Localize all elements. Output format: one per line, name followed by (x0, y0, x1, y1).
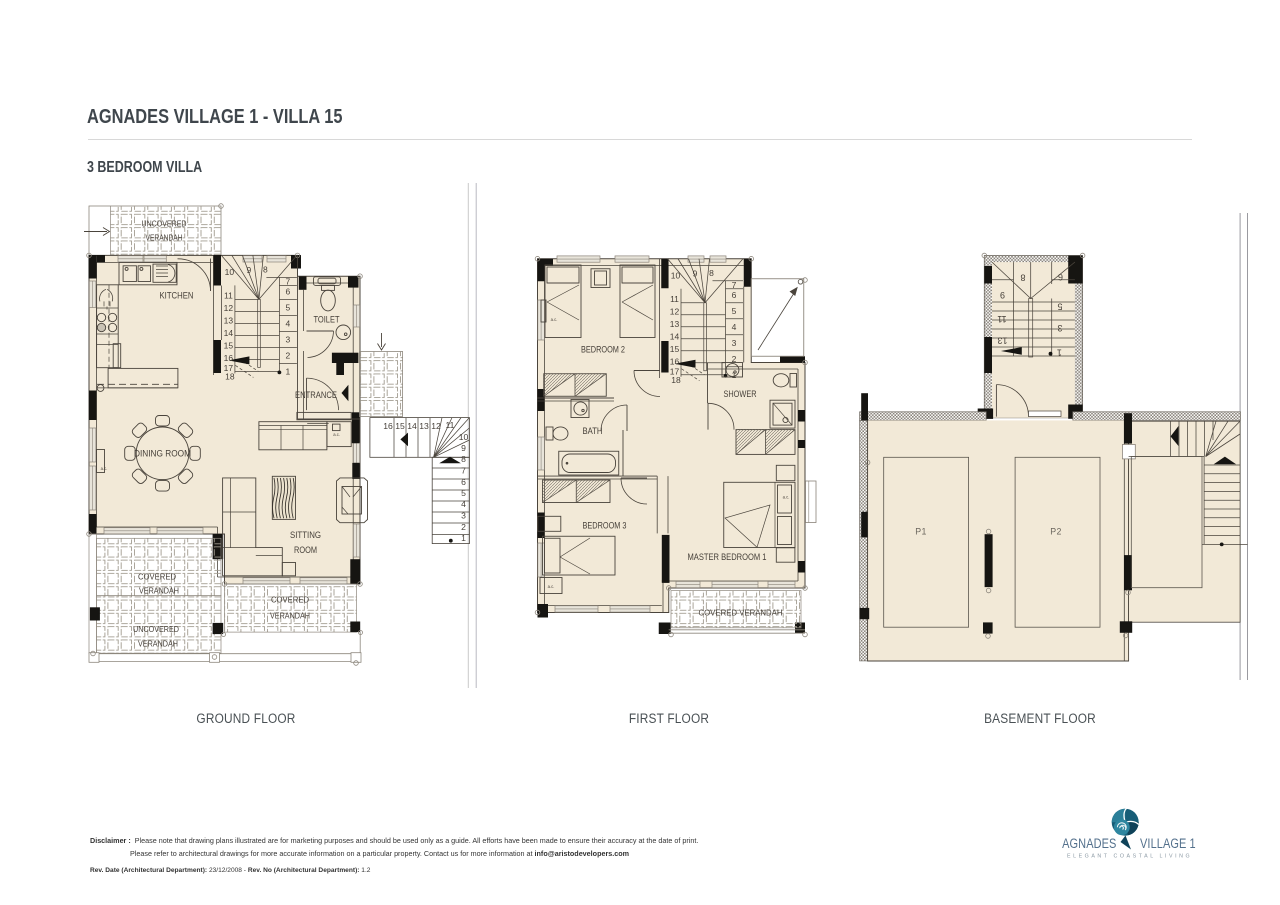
svg-text:15: 15 (670, 344, 680, 354)
svg-text:UNCOVERED: UNCOVERED (133, 625, 179, 634)
svg-text:VERANDAH: VERANDAH (139, 587, 179, 596)
svg-text:2: 2 (461, 522, 466, 532)
svg-text:18: 18 (671, 375, 681, 385)
svg-text:VERANDAH: VERANDAH (146, 234, 183, 243)
svg-text:8: 8 (461, 454, 466, 464)
svg-text:VILLAGE 1: VILLAGE 1 (1140, 836, 1196, 851)
svg-text:1: 1 (286, 366, 291, 376)
svg-text:P1: P1 (915, 527, 927, 537)
svg-text:8: 8 (709, 268, 714, 278)
svg-text:KITCHEN: KITCHEN (160, 291, 194, 301)
svg-text:11: 11 (670, 294, 679, 304)
svg-text:3: 3 (286, 334, 291, 344)
svg-text:13: 13 (419, 421, 429, 431)
svg-text:5: 5 (1057, 302, 1062, 312)
svg-text:6: 6 (732, 290, 737, 300)
svg-text:a.c.: a.c. (101, 466, 108, 471)
svg-text:6: 6 (286, 286, 291, 296)
svg-text:14: 14 (224, 328, 234, 338)
svg-text:1: 1 (1057, 347, 1062, 357)
svg-text:BEDROOM 2: BEDROOM 2 (581, 345, 625, 355)
svg-text:7: 7 (732, 280, 737, 290)
svg-text:VERANDAH: VERANDAH (138, 640, 178, 649)
svg-text:a.c.: a.c. (783, 495, 790, 500)
svg-text:DINING ROOM: DINING ROOM (134, 448, 191, 458)
svg-text:4: 4 (286, 318, 291, 328)
svg-text:BEDROOM 3: BEDROOM 3 (583, 521, 627, 531)
svg-text:16: 16 (383, 421, 393, 431)
svg-text:15: 15 (395, 421, 405, 431)
svg-text:13: 13 (670, 319, 680, 329)
svg-text:3: 3 (461, 511, 466, 521)
svg-text:5: 5 (732, 306, 737, 316)
svg-text:P2: P2 (1050, 527, 1062, 537)
svg-text:1: 1 (461, 533, 466, 543)
svg-text:5: 5 (461, 488, 466, 498)
svg-text:a.c.: a.c. (333, 432, 340, 437)
svg-text:4: 4 (732, 322, 737, 332)
svg-text:12: 12 (224, 303, 234, 313)
svg-text:COVERED VERANDAH: COVERED VERANDAH (699, 608, 783, 617)
svg-text:a.c.: a.c. (548, 584, 555, 589)
svg-text:13: 13 (997, 336, 1007, 346)
svg-text:COVERED: COVERED (271, 596, 309, 605)
svg-text:9: 9 (461, 443, 466, 453)
svg-text:UNCOVERED: UNCOVERED (142, 220, 187, 229)
svg-text:a.c.: a.c. (551, 317, 558, 322)
svg-text:9: 9 (1000, 290, 1005, 300)
svg-text:12: 12 (670, 306, 680, 316)
svg-text:11: 11 (997, 314, 1006, 324)
svg-text:MASTER BEDROOM 1: MASTER BEDROOM 1 (688, 552, 767, 562)
svg-text:6: 6 (1058, 272, 1063, 282)
svg-text:9: 9 (693, 268, 698, 278)
svg-text:6: 6 (461, 477, 466, 487)
svg-text:18: 18 (225, 371, 235, 381)
svg-text:SITTING: SITTING (290, 530, 321, 540)
svg-text:11: 11 (224, 290, 233, 300)
svg-text:8: 8 (1020, 273, 1025, 283)
svg-text:7: 7 (286, 276, 291, 286)
svg-text:16: 16 (670, 356, 680, 366)
svg-text:4: 4 (461, 499, 466, 509)
svg-text:3: 3 (1057, 323, 1062, 333)
svg-text:2: 2 (286, 350, 291, 360)
svg-text:16: 16 (224, 353, 234, 363)
svg-text:AGNADES: AGNADES (1062, 836, 1116, 851)
svg-text:ENTRANCE: ENTRANCE (295, 390, 337, 400)
svg-text:10: 10 (459, 432, 469, 442)
svg-text:10: 10 (671, 270, 681, 280)
svg-text:14: 14 (670, 331, 680, 341)
svg-text:15: 15 (224, 340, 234, 350)
svg-text:10: 10 (225, 267, 235, 277)
svg-text:9: 9 (247, 265, 252, 275)
svg-text:11: 11 (446, 420, 455, 430)
svg-text:8: 8 (263, 264, 268, 274)
svg-text:ROOM: ROOM (294, 545, 317, 555)
svg-text:VERANDAH: VERANDAH (270, 612, 310, 621)
svg-text:14: 14 (407, 421, 417, 431)
svg-text:ELEGANT COASTAL LIVING: ELEGANT COASTAL LIVING (1067, 854, 1192, 860)
svg-text:SHOWER: SHOWER (724, 389, 757, 399)
svg-text:TOILET: TOILET (314, 315, 340, 325)
svg-text:COVERED: COVERED (138, 573, 176, 582)
svg-text:3: 3 (732, 338, 737, 348)
svg-text:7: 7 (461, 466, 466, 476)
svg-text:BATH: BATH (583, 426, 603, 436)
svg-text:5: 5 (286, 302, 291, 312)
svg-text:12: 12 (431, 421, 441, 431)
svg-text:13: 13 (224, 315, 234, 325)
